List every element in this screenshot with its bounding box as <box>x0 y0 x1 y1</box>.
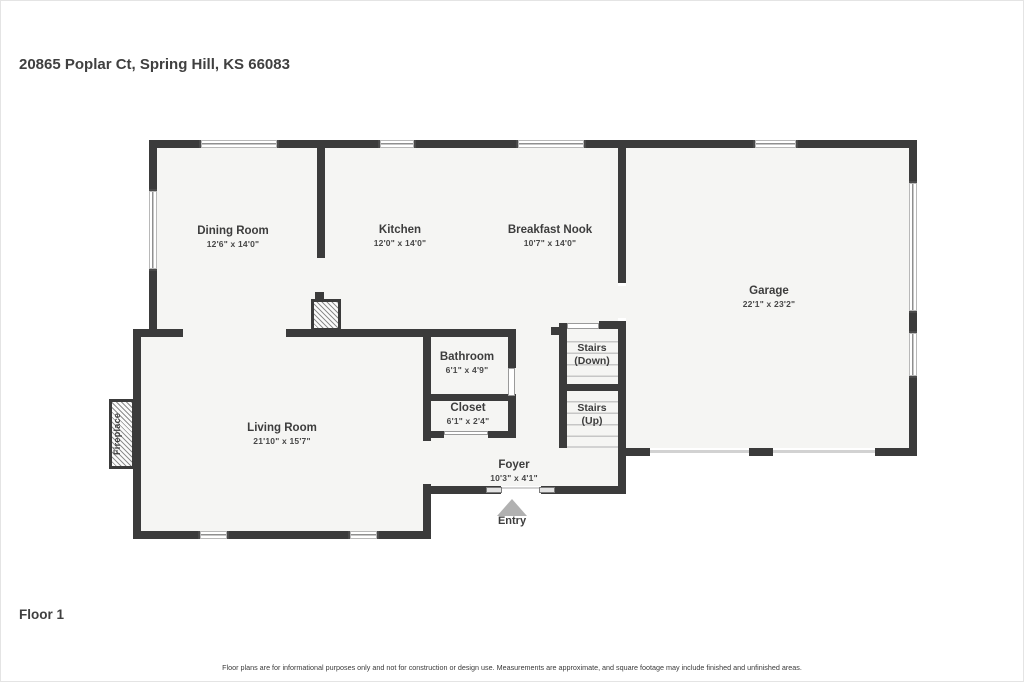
garage-door-line-2 <box>773 450 875 453</box>
wall-garage-right-mid <box>909 313 917 331</box>
garage-entry-door-tick-top <box>618 283 626 286</box>
wall-kitchen-divider <box>317 148 325 258</box>
wall-closet-bottom-left <box>423 431 444 438</box>
room-dims: 6'1" x 2'4" <box>447 416 490 426</box>
wall-mid-left <box>133 329 183 337</box>
room-name: Garage <box>743 285 796 299</box>
room-name: Living Room <box>247 422 317 436</box>
chimney <box>311 299 341 331</box>
wall-stairs-stub <box>551 327 563 335</box>
room-label-bathroom: Bathroom 6'1" x 4'9" <box>440 351 494 375</box>
wall-garage-bottom-mid <box>749 448 773 456</box>
room-dims: 22'1" x 23'2" <box>743 299 796 309</box>
disclaimer: Floor plans are for informational purpos… <box>1 663 1023 672</box>
fireplace: Fireplace <box>109 399 135 469</box>
room-name: Breakfast Nook <box>508 224 592 238</box>
stairs-up-line2: (Up) <box>582 415 603 427</box>
wall-bathroom-right <box>508 337 516 368</box>
entry-door-line <box>501 487 541 489</box>
garage-door-line-1 <box>650 450 749 453</box>
window-kitchen-top <box>378 140 416 148</box>
garage-entry-door-tick-bottom <box>618 318 626 321</box>
fireplace-label: Fireplace <box>112 402 132 466</box>
wall-garage-left-lower <box>618 321 626 491</box>
window-breakfast-top <box>516 140 586 148</box>
room-name: Bathroom <box>440 351 494 365</box>
wall-stairs-top-right <box>599 321 626 329</box>
wall-stairs-divider <box>559 384 626 391</box>
room-label-breakfast-nook: Breakfast Nook 10'7" x 14'0" <box>508 224 592 248</box>
stairs-down-line2: (Down) <box>574 355 610 367</box>
stairs-bottom-line <box>567 446 618 448</box>
room-label-garage: Garage 22'1" x 23'2" <box>743 285 796 309</box>
wall-living-bottom <box>133 531 431 539</box>
stairs-up-line1: Stairs <box>577 402 606 414</box>
room-name: Closet <box>447 402 490 416</box>
entry-arrow <box>497 499 527 516</box>
room-label-kitchen: Kitchen 12'0" x 14'0" <box>374 224 427 248</box>
window-dining-top <box>199 140 279 148</box>
floor-label: Floor 1 <box>19 607 64 622</box>
room-label-foyer: Foyer 10'3" x 4'1" <box>490 459 538 483</box>
room-label-living-room: Living Room 21'10" x 15'7" <box>247 422 317 446</box>
window-living-bottom-1 <box>198 531 229 539</box>
floor-plan: Stairs (Down) Stairs (Up) Fireplace Entr… <box>1 1 1024 682</box>
wall-bathroom-left <box>423 329 431 441</box>
wall-garage-right-lower <box>909 378 917 456</box>
stairs-down-line1: Stairs <box>577 342 606 354</box>
window-living-bottom-2 <box>348 531 379 539</box>
stairs-up-label: Stairs (Up) <box>577 402 606 428</box>
stairs-top-opening <box>567 323 599 329</box>
room-dims: 6'1" x 4'9" <box>440 365 494 375</box>
window-dining-left <box>149 189 157 271</box>
stairs-down-label: Stairs (Down) <box>574 342 610 368</box>
closet-door <box>444 431 488 435</box>
room-dims: 10'3" x 4'1" <box>490 473 538 483</box>
room-label-dining-room: Dining Room 12'6" x 14'0" <box>197 225 269 249</box>
room-dims: 12'0" x 14'0" <box>374 238 427 248</box>
wall-garage-left-upper <box>618 140 626 283</box>
bathroom-door <box>508 368 515 396</box>
room-name: Foyer <box>490 459 538 473</box>
room-dims: 10'7" x 14'0" <box>508 238 592 248</box>
wall-closet-bottom-right <box>488 431 516 438</box>
window-garage-right-1 <box>909 181 917 313</box>
wall-garage-bottom-right <box>875 448 917 456</box>
room-dims: 21'10" x 15'7" <box>247 436 317 446</box>
window-garage-right-2 <box>909 331 917 378</box>
wall-garage-right-upper <box>909 140 917 181</box>
floor-plan-page: 20865 Poplar Ct, Spring Hill, KS 66083 <box>0 0 1024 682</box>
room-dims: 12'6" x 14'0" <box>197 239 269 249</box>
entry-sidelight-left <box>486 487 502 493</box>
wall-bathroom-bottom <box>431 394 516 401</box>
room-name: Kitchen <box>374 224 427 238</box>
entry-sidelight-right <box>539 487 555 493</box>
room-name: Dining Room <box>197 225 269 239</box>
window-garage-top <box>753 140 798 148</box>
entry-label: Entry <box>498 515 526 527</box>
room-label-closet: Closet 6'1" x 2'4" <box>447 402 490 426</box>
